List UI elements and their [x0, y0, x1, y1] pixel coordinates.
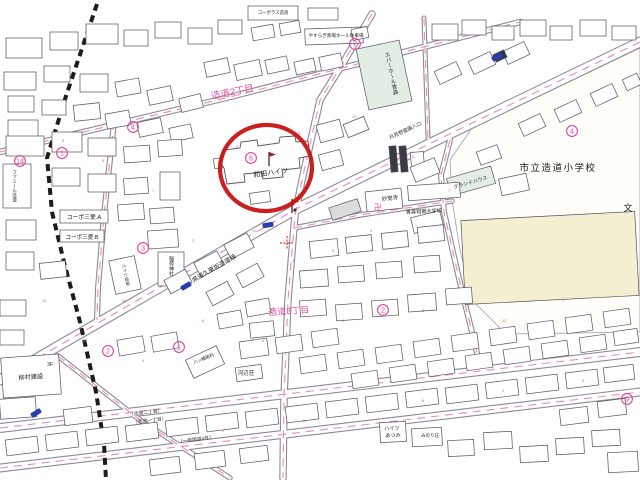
- building: [527, 320, 555, 339]
- building: [45, 431, 79, 451]
- map-label: 河辺荘: [238, 369, 255, 377]
- map-marker-number: 3: [138, 243, 149, 254]
- map-marker-number: 14: [15, 156, 26, 167]
- building: [465, 352, 493, 370]
- building: [299, 354, 327, 373]
- building: [217, 310, 243, 329]
- building: [417, 225, 445, 244]
- building: [265, 56, 289, 74]
- building: [520, 445, 549, 462]
- map-label: コーポ三愛.B: [65, 233, 99, 241]
- lot-number: 7: [152, 188, 155, 193]
- building: [8, 120, 38, 138]
- building: [150, 207, 175, 224]
- building: [249, 321, 274, 338]
- map-label: やすらぎ斎場ホール駐車場: [308, 32, 364, 39]
- building: [525, 374, 559, 394]
- building: [88, 138, 116, 156]
- building: [124, 30, 148, 46]
- building: [39, 261, 67, 280]
- building: [123, 145, 150, 163]
- map-marker-number: 1: [57, 148, 68, 159]
- building: [541, 340, 569, 358]
- lot-number: 15: [302, 418, 307, 423]
- building: [125, 422, 159, 442]
- building: [325, 398, 359, 418]
- building: [249, 191, 270, 205]
- lot-number: 4: [370, 228, 373, 233]
- lot-number: 12: [352, 114, 357, 119]
- map-viewport[interactable]: 卍6381257492113759146835127410639152713市立…: [0, 0, 640, 480]
- building: [556, 437, 585, 454]
- map-label: あつみ: [385, 432, 401, 440]
- building: [239, 445, 269, 463]
- building: [337, 265, 364, 283]
- building: [565, 314, 593, 333]
- building: [434, 62, 462, 85]
- building: [123, 177, 148, 195]
- building: [520, 20, 546, 36]
- building: [413, 255, 440, 273]
- building: [448, 439, 475, 456]
- lot-number: 5: [102, 158, 105, 163]
- building: [389, 364, 417, 382]
- building: [413, 338, 441, 357]
- lot-number: 3: [192, 238, 195, 243]
- map-canvas[interactable]: 卍6381257492113759146835127410639152713市立…: [0, 0, 640, 480]
- map-label: 市立造道小学校: [519, 162, 596, 174]
- lot-number: 6: [202, 318, 205, 323]
- building: [88, 174, 116, 192]
- building: [155, 22, 181, 38]
- building: [8, 96, 34, 112]
- building: [52, 132, 82, 152]
- building: [157, 139, 182, 157]
- building: [147, 229, 178, 249]
- building: [559, 406, 589, 425]
- building: [318, 149, 343, 170]
- building: [185, 346, 224, 378]
- building: [502, 42, 530, 65]
- building: [80, 74, 108, 92]
- map-marker-digit: 6: [249, 154, 253, 163]
- map-marker-digit: 14: [16, 157, 24, 166]
- building: [4, 72, 36, 90]
- building: [0, 330, 24, 345]
- building: [311, 328, 339, 347]
- lot-number: 13: [42, 298, 47, 303]
- map-marker-digit: 4: [131, 123, 135, 132]
- building: [432, 24, 458, 40]
- building: [218, 20, 242, 34]
- building: [337, 349, 365, 368]
- map-marker-digit: 2: [106, 347, 110, 356]
- building: [6, 220, 36, 240]
- building: [299, 269, 328, 288]
- map-label: コーポ三愛.A: [67, 213, 102, 221]
- building: [85, 426, 119, 446]
- map-label: 文: [623, 202, 632, 213]
- building: [160, 172, 180, 200]
- map-marker-digit: 1: [60, 149, 64, 158]
- map-label: 月見野霊園入口: [388, 120, 423, 141]
- map-label: コーポラス造道: [258, 9, 289, 16]
- map-marker-digit: 9: [625, 395, 629, 404]
- building: [188, 28, 212, 44]
- building: [375, 344, 403, 363]
- building: [612, 26, 636, 40]
- building: [345, 235, 373, 254]
- building: [375, 261, 402, 279]
- building: [445, 287, 472, 305]
- building: [194, 450, 226, 470]
- building: [239, 338, 269, 359]
- building: [550, 26, 572, 40]
- building: [603, 308, 631, 327]
- building: [44, 66, 70, 82]
- map-marker-digit: 4: [570, 127, 574, 136]
- building: [427, 358, 455, 376]
- building: [462, 20, 486, 35]
- map-label: みのり荘: [421, 432, 439, 439]
- building: [343, 116, 369, 137]
- building: [147, 86, 174, 106]
- building: [351, 370, 379, 388]
- building: [579, 334, 607, 352]
- building: [489, 326, 517, 345]
- map-marker-digit: 2: [381, 306, 385, 315]
- building: [445, 384, 479, 404]
- building: [204, 58, 231, 78]
- lot-number: 4: [142, 358, 145, 363]
- building: [63, 406, 93, 425]
- map-marker-number: 4: [128, 122, 139, 133]
- building: [245, 408, 279, 428]
- building: [42, 100, 66, 115]
- temple-manji-icon: 卍: [374, 203, 382, 212]
- building: [165, 417, 199, 437]
- building: [279, 20, 301, 35]
- building: [308, 8, 338, 20]
- building: [580, 20, 606, 36]
- building: [115, 78, 141, 97]
- building: [206, 281, 234, 306]
- map-label: ハイツ: [384, 426, 400, 433]
- building: [316, 119, 344, 143]
- lot-number: 10: [82, 338, 87, 343]
- lot-number: 14: [122, 298, 127, 303]
- building: [236, 263, 264, 288]
- map-marker-digit: 1: [177, 343, 181, 352]
- building: [461, 212, 639, 305]
- building: [381, 231, 409, 250]
- signal-dot-icon: [293, 208, 296, 211]
- building: [468, 52, 496, 75]
- building: [117, 336, 145, 356]
- map-marker-digit: 3: [141, 244, 145, 253]
- building: [371, 299, 398, 317]
- map-marker-number: 2: [103, 346, 114, 357]
- building: [50, 32, 78, 50]
- building: [335, 303, 362, 321]
- map-marker-digit: 7: [353, 40, 357, 49]
- building: [365, 393, 399, 413]
- building: [275, 334, 303, 353]
- lot-number: 12: [502, 318, 507, 323]
- map-label: 稲荷神社: [168, 255, 174, 277]
- building: [179, 94, 204, 113]
- building: [6, 38, 42, 58]
- lot-number: 3: [298, 130, 301, 135]
- building: [607, 451, 638, 473]
- building: [151, 332, 179, 352]
- building: [492, 26, 514, 40]
- building: [5, 436, 39, 456]
- building: [613, 328, 639, 345]
- building: [52, 168, 80, 186]
- building: [484, 431, 513, 449]
- building: [592, 429, 621, 446]
- building: [117, 203, 144, 221]
- building: [0, 397, 37, 419]
- map-label: ファミール造道: [12, 170, 18, 204]
- building: [234, 59, 263, 80]
- building: [309, 239, 339, 259]
- building: [0, 300, 26, 316]
- building: [603, 364, 635, 383]
- building: [6, 136, 44, 156]
- map-label: 3F: [47, 362, 53, 368]
- building: [451, 332, 479, 351]
- building: [73, 103, 101, 122]
- building: [86, 24, 118, 44]
- building: [149, 456, 181, 476]
- building: [6, 252, 34, 270]
- building: [503, 346, 531, 364]
- building: [251, 24, 275, 41]
